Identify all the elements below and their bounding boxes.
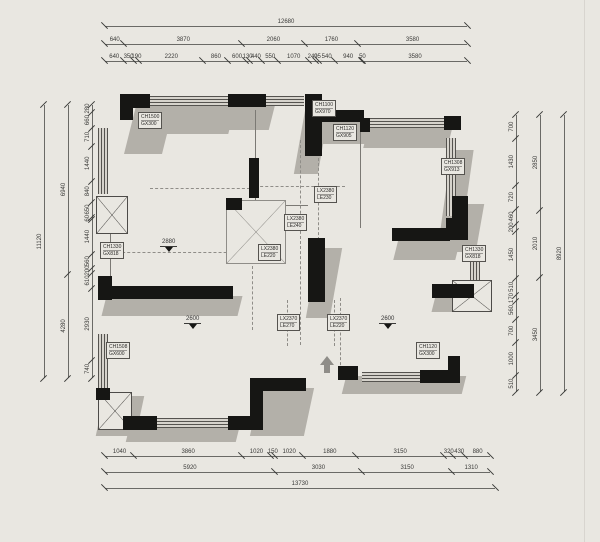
dim-value: 5920 [183, 465, 196, 471]
wall-segment [120, 94, 133, 120]
dim-value: 3030 [312, 465, 325, 471]
dim-value: 2220 [165, 54, 178, 60]
dim-tick [40, 375, 47, 382]
dim-value: 1760 [325, 37, 338, 43]
dim-segment: 11120 [36, 105, 44, 378]
wall-shadow [363, 126, 452, 148]
dashed-line [340, 298, 341, 370]
tag-line1: CH1120 [336, 126, 354, 133]
wall-segment [96, 388, 110, 400]
wall-segment [123, 416, 157, 430]
dim-segment: 12680 [105, 18, 467, 26]
dim-value: 840 [85, 186, 91, 196]
partition-line [360, 130, 361, 228]
wall-shadow [102, 296, 243, 316]
dim-segment: 2010 [532, 210, 540, 277]
dim-tick [88, 375, 95, 382]
wall-segment [452, 196, 468, 240]
tag-line2: GX818 [465, 254, 483, 260]
wall-segment [338, 366, 358, 380]
dim-value: 640 [110, 37, 120, 43]
tag-line2: LE220 [330, 323, 347, 329]
dim-segment: 3860 [134, 448, 242, 456]
height-value: 2600 [379, 316, 396, 324]
dim-segment: 1430 [508, 138, 516, 185]
dim-segment: 2930 [84, 288, 92, 360]
window-band [362, 372, 420, 382]
dim-value: 740 [85, 364, 91, 374]
dim-segment: 13730 [105, 480, 495, 488]
tag-line2: GX818 [103, 251, 121, 257]
dim-value: 2010 [533, 237, 539, 250]
dim-segment: 1760 [305, 36, 358, 44]
dim-value: 1880 [323, 449, 336, 455]
dim-segment: 700 [508, 115, 516, 138]
dim-tick [101, 452, 108, 459]
wall-segment [444, 116, 461, 130]
down-triangle-icon [165, 247, 173, 252]
tag-line1: LX2380 [287, 216, 304, 223]
window-tag: CH1120GX905 [333, 124, 357, 141]
dim-value: 700 [509, 326, 515, 336]
dim-top-row2: 6403870206017603580 [105, 36, 467, 45]
tag-line1: CH1120 [419, 344, 437, 351]
tag-line2: GX300 [141, 121, 159, 127]
dim-tick [64, 375, 71, 382]
wall-segment [98, 276, 112, 300]
dashed-line [150, 188, 250, 189]
dim-value: 2850 [533, 156, 539, 169]
tag-line1: CH1330 [465, 247, 483, 254]
tag-line2: LE270 [280, 323, 297, 329]
dim-value: 2930 [85, 317, 91, 330]
dim-value: 3150 [394, 449, 407, 455]
dim-top-row3: 6403501902220860600130440550107024095540… [105, 53, 467, 62]
height-mark: 2600 [379, 316, 396, 329]
wall-segment [392, 228, 450, 241]
dim-tick [512, 389, 519, 396]
beam-tag: LX2380LE230 [314, 186, 337, 203]
dim-value: 1040 [113, 449, 126, 455]
dim-right-mid: 345020102850 [532, 115, 541, 392]
dim-value: 560 [509, 305, 515, 315]
dim-value: 3450 [533, 328, 539, 341]
tag-line2: GX970 [315, 109, 333, 115]
dim-segment: 2220 [139, 53, 203, 61]
window-tag: CH1308GX913 [441, 158, 465, 175]
dim-segment: 3030 [275, 464, 362, 472]
height-value: 2880 [160, 239, 177, 247]
tag-line2: LE240 [287, 223, 304, 229]
dim-value: 1310 [464, 465, 477, 471]
dim-segment: 2850 [532, 115, 540, 210]
height-mark: 2880 [160, 239, 177, 252]
wall-segment [308, 238, 325, 302]
window-band [264, 96, 304, 106]
dim-value: 510 [509, 282, 515, 292]
dim-tick [560, 389, 567, 396]
dim-left-total: 11120 [36, 105, 45, 378]
dim-value: 1450 [509, 248, 515, 261]
wall-shadow [393, 238, 460, 260]
tag-line2: LE220 [261, 253, 278, 259]
dim-value: 12680 [278, 19, 295, 25]
dim-value: 1440 [85, 157, 91, 170]
tag-line1: LX2370 [330, 316, 347, 323]
dim-value: 510 [509, 379, 515, 389]
dim-value: 880 [473, 449, 483, 455]
tag-line1: LX2370 [280, 316, 297, 323]
wall-segment [360, 118, 370, 132]
beam-tag: LX2380LE220 [258, 244, 281, 261]
height-value: 2600 [184, 316, 201, 324]
window-band [150, 96, 228, 106]
beam-tag: LX2370LE220 [327, 314, 350, 331]
floor-plan-canvas: 12680 6403870206017603580 64035019022208… [0, 0, 600, 542]
dim-left-inner: 7402930610200560144060650840144071066028… [84, 105, 93, 378]
dim-tick [536, 389, 543, 396]
dim-segment: 1450 [508, 231, 516, 279]
wall-segment [262, 378, 306, 391]
dim-value: 13730 [292, 481, 309, 487]
dim-value: 4280 [61, 319, 67, 332]
window-band [157, 418, 229, 428]
dim-value: 1000 [509, 352, 515, 365]
tag-line1: LX2380 [317, 188, 334, 195]
wall-segment [228, 94, 266, 107]
dim-segment: 3580 [358, 36, 467, 44]
dim-right-inner: 510100070056017051014502004607201430700 [508, 115, 517, 392]
dim-value: 3580 [408, 54, 421, 60]
dim-value: 1070 [287, 54, 300, 60]
window-tag: CH1330GX818 [100, 242, 124, 259]
down-triangle-icon [384, 324, 392, 329]
dim-top-total: 12680 [105, 18, 467, 27]
dim-tick [101, 22, 108, 29]
tag-line1: CH1330 [103, 244, 121, 251]
dim-value: 860 [211, 54, 221, 60]
down-triangle-icon [189, 324, 197, 329]
beam-tag: LX2370LE270 [277, 314, 300, 331]
tag-line2: GX913 [444, 167, 462, 173]
entry-arrow-icon [320, 356, 334, 373]
beam-tag: LX2380LE240 [284, 214, 307, 231]
dim-segment: 6940 [60, 105, 68, 274]
wall-segment [432, 284, 474, 298]
dim-tick [101, 57, 108, 64]
dim-segment: 1000 [508, 342, 516, 375]
dim-bottom-row2: 5920303031501310 [105, 464, 490, 473]
wall-shadow [229, 104, 275, 130]
dim-tick [101, 468, 108, 475]
arrow-head [320, 356, 334, 365]
dim-value: 1020 [283, 449, 296, 455]
dim-bottom-row1: 104038601020150102018803150320430880 [105, 448, 490, 457]
wall-segment [448, 356, 460, 382]
dim-segment: 1880 [303, 448, 356, 456]
dim-right-total: 8920 [556, 115, 565, 392]
window-band [98, 128, 108, 194]
dim-value: 660 [85, 115, 91, 125]
window-tag: CH1330GX818 [462, 245, 486, 262]
tag-line2: GX300 [419, 351, 437, 357]
dim-value: 710 [85, 132, 91, 142]
dim-value: 3860 [181, 449, 194, 455]
wall-segment [249, 158, 259, 198]
dim-segment: 1310 [452, 464, 490, 472]
dim-segment: 5920 [105, 464, 275, 472]
dim-value: 2060 [267, 37, 280, 43]
dim-value: 3150 [400, 465, 413, 471]
dim-segment: 1440 [84, 146, 92, 181]
window-band [364, 118, 444, 128]
height-mark: 2600 [184, 316, 201, 329]
dim-segment: 1440 [84, 219, 92, 254]
dim-tick [101, 484, 108, 491]
dim-segment: 3870 [124, 36, 242, 44]
dim-value: 3580 [406, 37, 419, 43]
window-tag: CH1120GX300 [416, 342, 440, 359]
arrow-stem [324, 365, 330, 373]
page-edge-line [584, 0, 585, 542]
dim-segment: 3450 [532, 277, 540, 392]
dim-segment: 3150 [356, 448, 444, 456]
window-tag: CH1500GX300 [138, 112, 162, 129]
dim-segment: 8920 [556, 115, 564, 392]
dim-segment: 2060 [242, 36, 305, 44]
tag-line1: CH1508 [109, 344, 127, 351]
tag-line2: LE230 [317, 195, 334, 201]
wall-segment [226, 198, 242, 210]
wall-segment [100, 286, 233, 299]
dim-segment: 3580 [363, 53, 467, 61]
dim-value: 1430 [509, 155, 515, 168]
elevator-shaft [96, 196, 128, 234]
tag-line2: GX905 [336, 133, 354, 139]
dim-tick [101, 40, 108, 47]
tag-line1: CH1500 [141, 114, 159, 121]
dim-left-mid: 42806940 [60, 105, 69, 378]
dim-value: 11120 [37, 234, 43, 250]
tag-line2: GX600 [109, 351, 127, 357]
dim-segment: 4280 [60, 274, 68, 378]
tag-line1: LX2380 [261, 246, 278, 253]
tag-line1: CH1100 [315, 102, 333, 109]
dim-value: 6940 [61, 183, 67, 196]
dim-value: 1020 [250, 449, 263, 455]
dim-value: 3870 [177, 37, 190, 43]
dim-value: 8920 [557, 247, 563, 260]
dim-segment: 3150 [362, 464, 452, 472]
tag-line1: CH1308 [444, 160, 462, 167]
dim-value: 1440 [85, 230, 91, 243]
dim-value: 940 [343, 54, 353, 60]
dim-bottom-total: 13730 [105, 480, 495, 489]
dim-value: 720 [509, 192, 515, 202]
window-tag: CH1100GX970 [312, 100, 336, 117]
dim-value: 640 [109, 54, 119, 60]
dim-value: 700 [509, 122, 515, 132]
window-tag: CH1508GX600 [106, 342, 130, 359]
dim-value: 600 [232, 54, 242, 60]
